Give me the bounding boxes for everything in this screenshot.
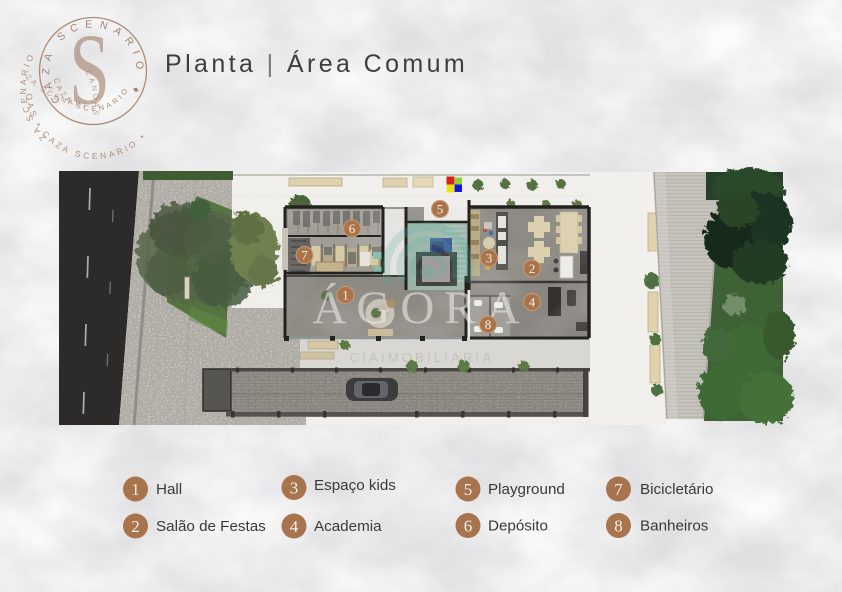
svg-text:Playground: Playground [488, 481, 565, 498]
svg-text:Salão de Festas: Salão de Festas [156, 518, 266, 535]
svg-text:1: 1 [342, 288, 349, 303]
svg-text:Espaço kids: Espaço kids [314, 477, 396, 494]
svg-text:7: 7 [614, 480, 623, 499]
svg-text:6: 6 [464, 517, 473, 536]
svg-text:3: 3 [486, 251, 493, 266]
svg-text:Academia: Academia [314, 518, 382, 535]
svg-text:Banheiros: Banheiros [640, 518, 709, 535]
svg-text:1: 1 [131, 480, 140, 499]
svg-text:Bicicletário: Bicicletário [640, 481, 713, 498]
svg-text:2: 2 [131, 517, 140, 536]
svg-text:8: 8 [614, 517, 623, 536]
svg-text:4: 4 [290, 517, 299, 536]
svg-text:6: 6 [349, 221, 356, 236]
svg-text:7: 7 [301, 248, 308, 263]
svg-text:2: 2 [529, 261, 536, 276]
svg-text:3: 3 [290, 479, 299, 498]
svg-text:Hall: Hall [156, 481, 182, 498]
svg-text:Planta | Área Comum: Planta | Área Comum [165, 49, 468, 78]
svg-text:8: 8 [485, 317, 492, 332]
svg-text:4: 4 [529, 295, 536, 310]
svg-text:CIAIMOBILIÁRIA: CIAIMOBILIÁRIA [350, 350, 495, 365]
svg-text:Depósito: Depósito [488, 518, 548, 535]
svg-text:5: 5 [464, 480, 473, 499]
svg-text:5: 5 [437, 202, 444, 217]
